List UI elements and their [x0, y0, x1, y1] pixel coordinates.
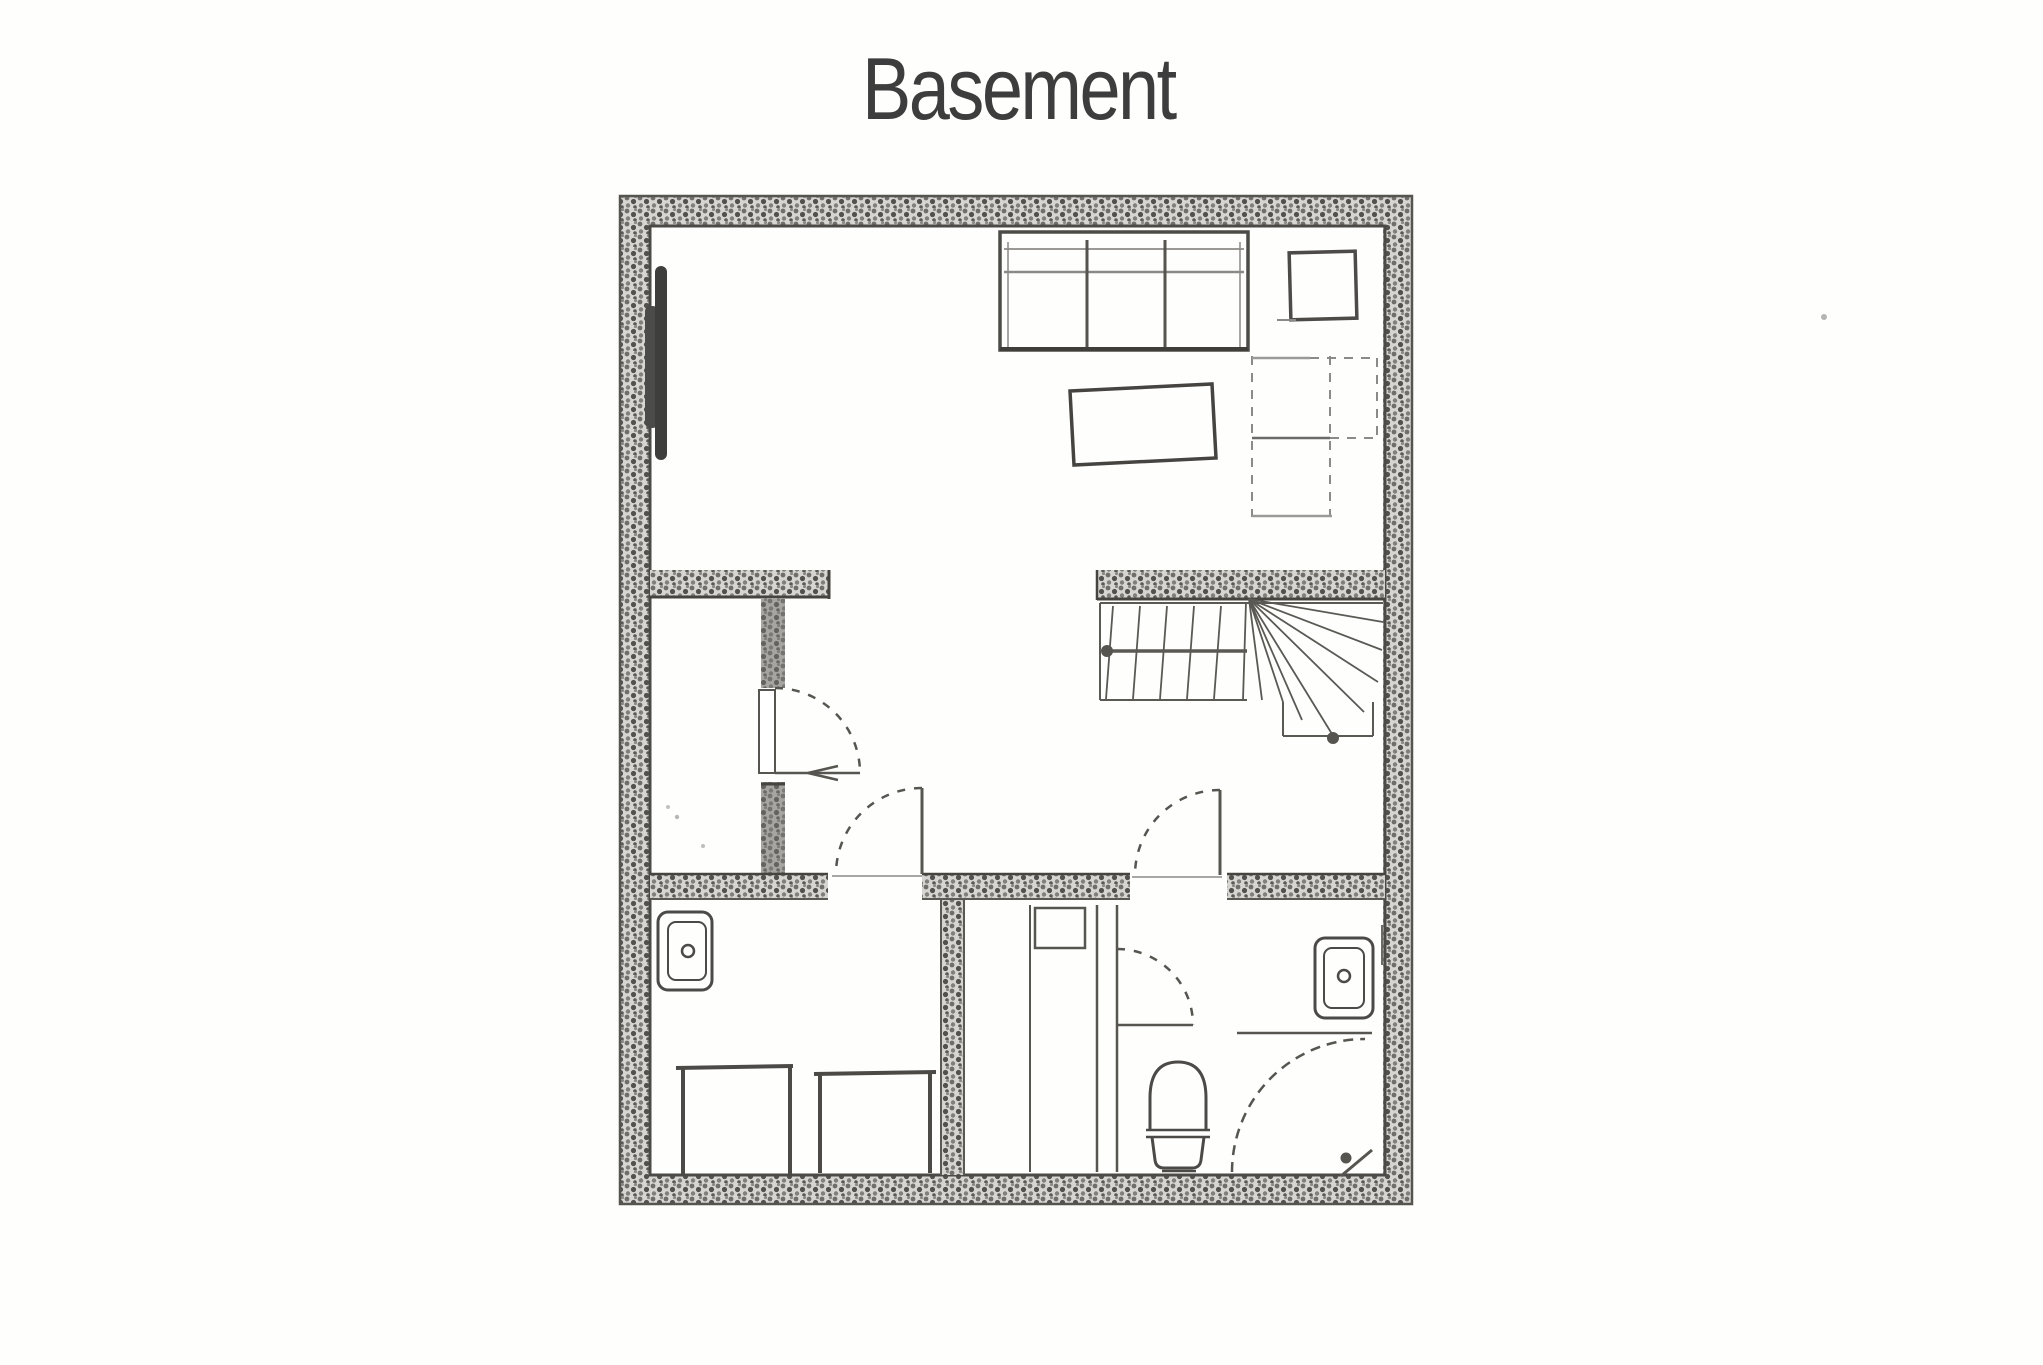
shower-partition	[1030, 905, 1117, 1172]
shower-door	[1117, 949, 1193, 1025]
side-table	[1277, 251, 1357, 320]
wall-hall-bottom-left	[650, 873, 828, 900]
newel-post	[1101, 645, 1113, 657]
toilet-tank	[1152, 1137, 1204, 1168]
door-leaf	[759, 690, 775, 773]
wall-above-stairs	[1097, 570, 1385, 600]
door-storage-closet	[759, 688, 860, 780]
wall-hall-bottom-right	[1227, 873, 1385, 900]
shower-valve-box	[1035, 908, 1085, 948]
bathroom-sink	[1315, 925, 1382, 1018]
scanned-page: Basement	[0, 0, 2043, 1365]
washer	[676, 1066, 793, 1175]
door-bathroom	[1132, 790, 1222, 877]
dryer	[814, 1072, 936, 1173]
newel-post	[1327, 732, 1339, 744]
faucet	[1338, 970, 1350, 982]
wall-laundry-bath	[940, 900, 965, 1175]
coffee-table	[1070, 384, 1216, 465]
door-laundry-room	[832, 788, 922, 876]
door-swing-arc	[1232, 1039, 1365, 1172]
dashed-cabinet	[1252, 356, 1377, 517]
bathroom-corner-door	[1232, 1033, 1372, 1176]
laundry-sink	[658, 912, 712, 990]
door-swing-arc	[836, 788, 922, 874]
toilet	[1146, 1062, 1210, 1171]
door-swing-arc	[775, 688, 860, 773]
winder-treads	[1249, 599, 1383, 734]
door-swing-arc	[1135, 790, 1220, 875]
toilet-bowl	[1150, 1062, 1206, 1129]
wall-hall-bottom-mid	[922, 873, 1130, 900]
hinge-dot	[1341, 1153, 1352, 1164]
sofa	[1000, 232, 1248, 350]
wall-hall-left	[650, 570, 829, 598]
faucet	[682, 945, 694, 957]
staircase	[1100, 599, 1383, 744]
interior-walls	[650, 570, 1385, 1175]
basement-floor-plan	[0, 0, 2043, 1365]
door-swing-arc	[1117, 949, 1193, 1025]
